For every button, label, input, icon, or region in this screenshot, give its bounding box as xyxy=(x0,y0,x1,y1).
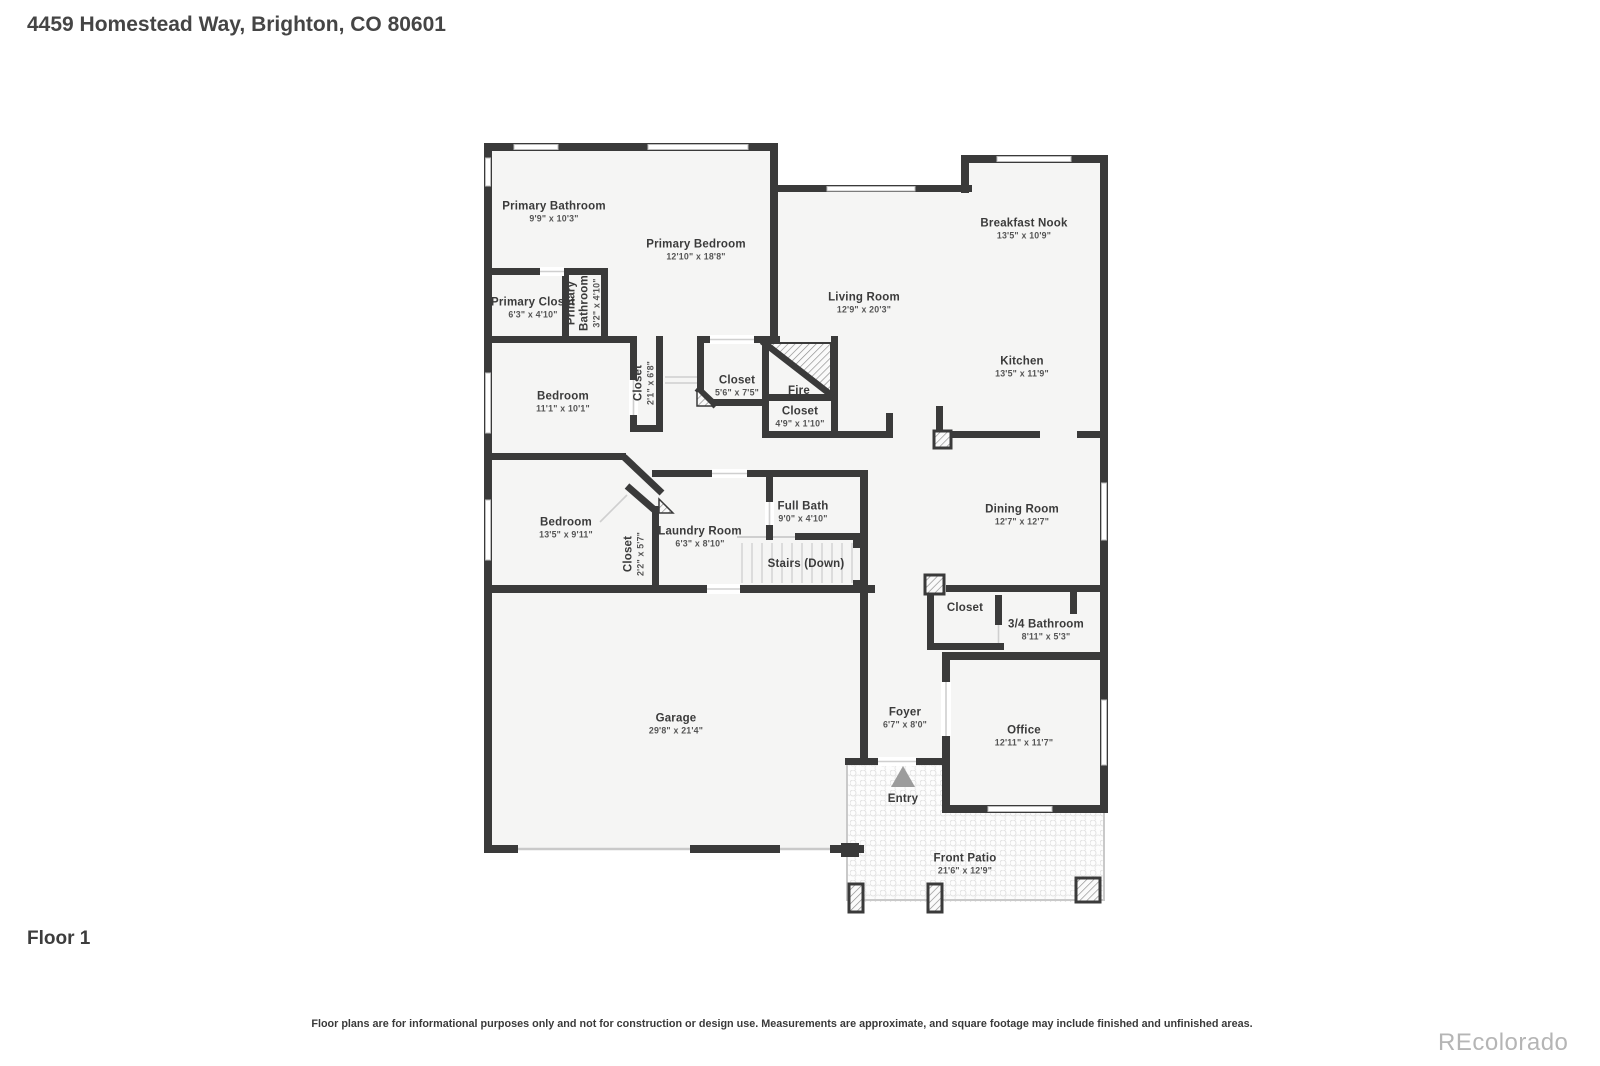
floor-plan-page: 4459 Homestead Way, Brighton, CO 80601 xyxy=(0,0,1600,1066)
disclaimer-text: Floor plans are for informational purpos… xyxy=(311,1018,1252,1030)
floor-label: Floor 1 xyxy=(27,928,90,950)
watermark-recolorado: REcolorado xyxy=(1438,1029,1568,1057)
floor-plan-drawing xyxy=(0,0,1600,1066)
floor-areas xyxy=(488,147,1104,849)
